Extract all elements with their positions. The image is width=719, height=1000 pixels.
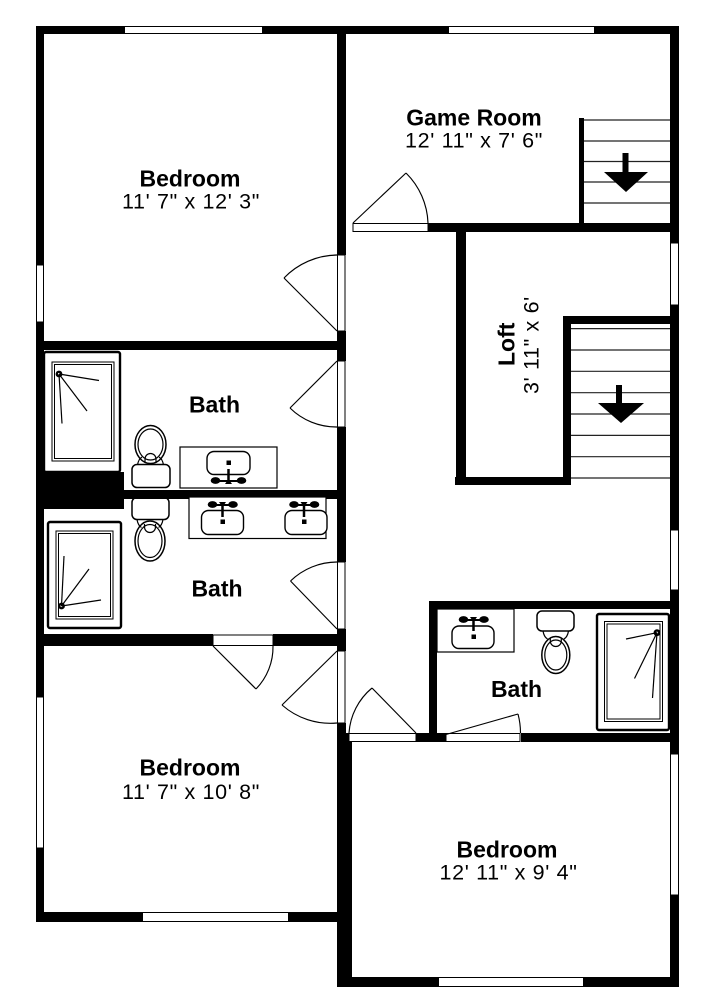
- svg-text:Loft: Loft: [494, 322, 520, 366]
- svg-text:3' 11" x 6': 3' 11" x 6': [520, 296, 544, 394]
- svg-text:Bath: Bath: [189, 392, 240, 418]
- svg-text:Bedroom: Bedroom: [457, 837, 558, 863]
- svg-text:Game Room: Game Room: [406, 105, 541, 131]
- svg-text:Bath: Bath: [191, 576, 242, 602]
- svg-text:11' 7" x 10' 8": 11' 7" x 10' 8": [122, 780, 260, 804]
- svg-text:12' 11" x 7' 6": 12' 11" x 7' 6": [405, 129, 543, 153]
- svg-text:12' 11" x 9' 4": 12' 11" x 9' 4": [439, 861, 577, 885]
- svg-text:Bedroom: Bedroom: [140, 166, 241, 192]
- svg-text:11' 7" x 12' 3": 11' 7" x 12' 3": [122, 190, 260, 214]
- svg-text:Bedroom: Bedroom: [140, 755, 241, 781]
- svg-text:Bath: Bath: [491, 676, 542, 702]
